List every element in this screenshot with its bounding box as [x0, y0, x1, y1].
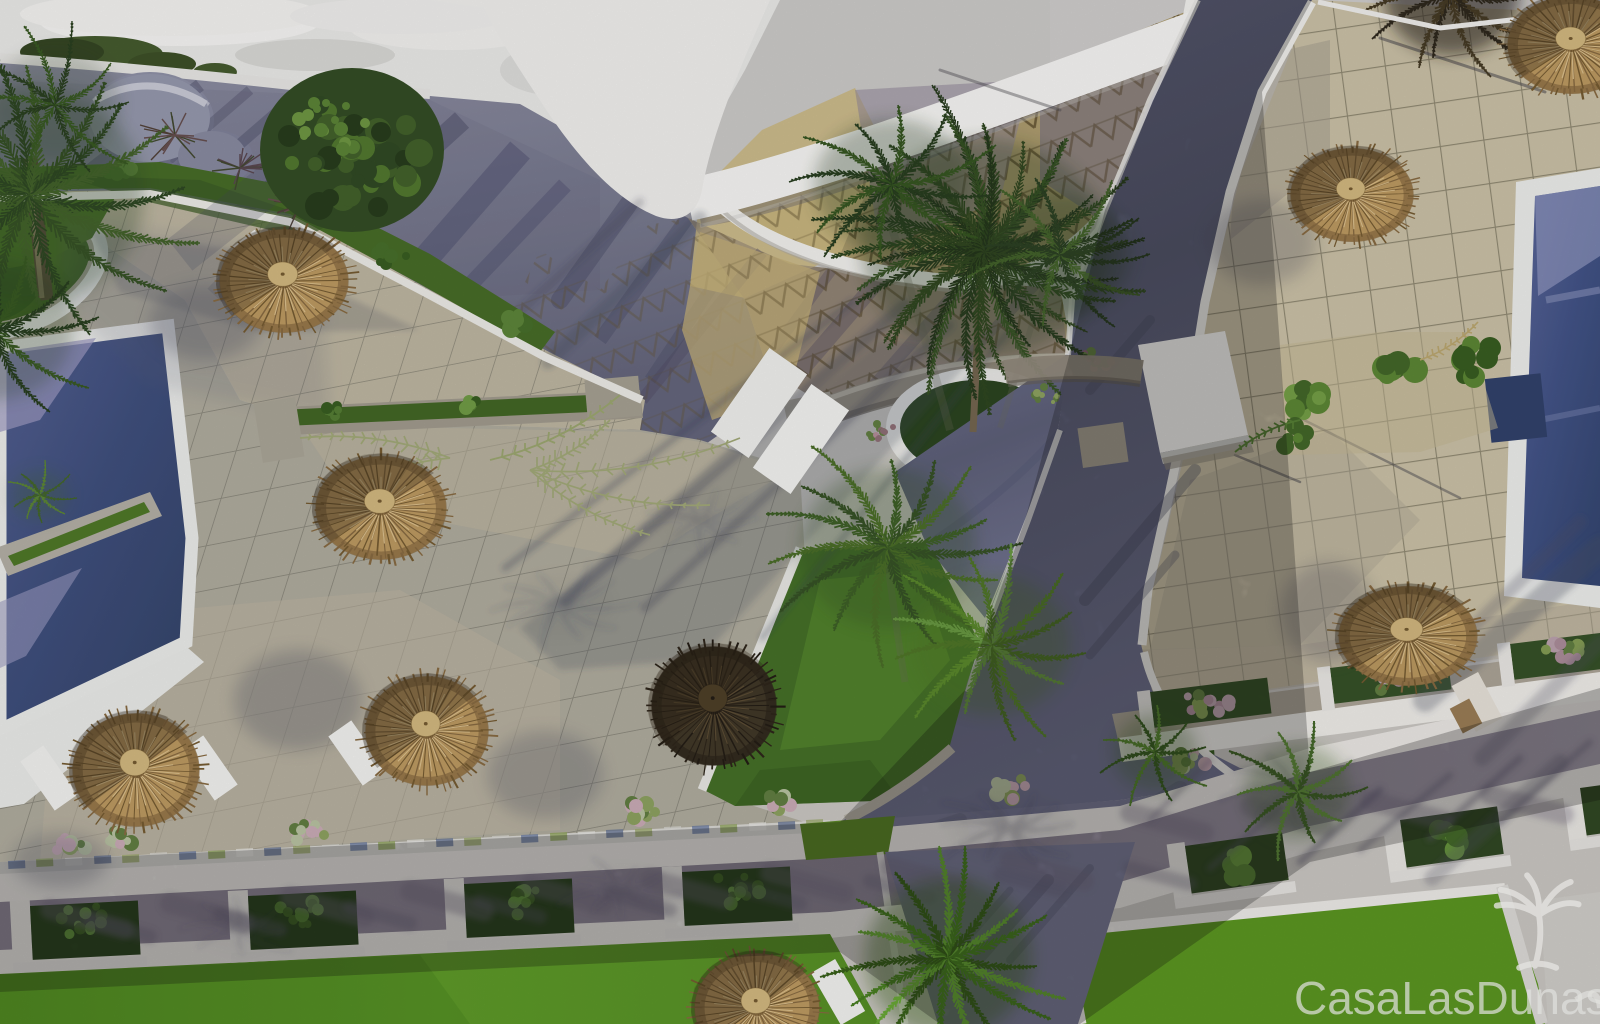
svg-text:CasaLasDunas: CasaLasDunas: [1294, 972, 1600, 1024]
